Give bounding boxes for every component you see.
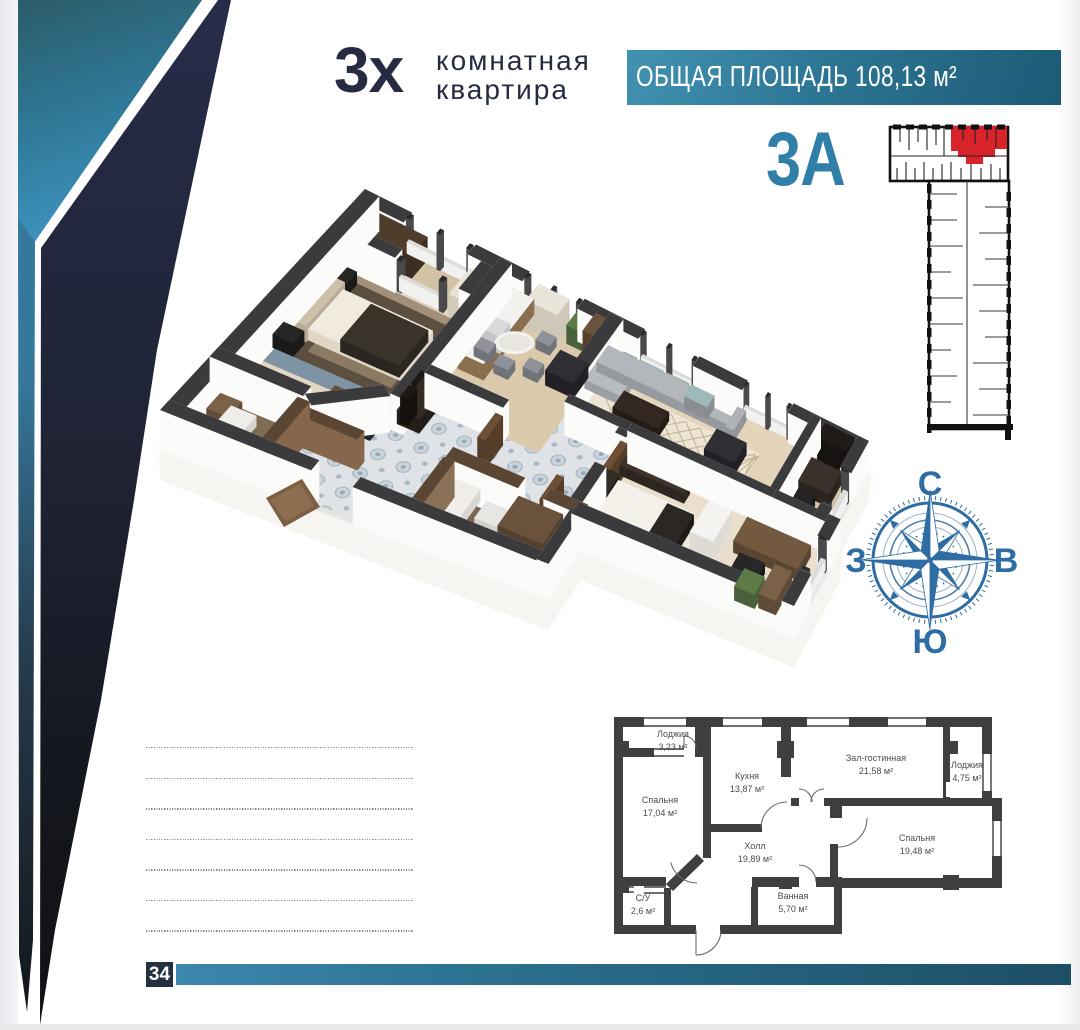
svg-text:Спальня: Спальня — [642, 795, 678, 805]
svg-text:5,70 м²: 5,70 м² — [778, 904, 807, 914]
svg-text:17,04 м²: 17,04 м² — [643, 808, 677, 818]
svg-text:Кухня: Кухня — [735, 771, 759, 781]
svg-text:19,48 м²: 19,48 м² — [900, 846, 934, 856]
svg-text:Зал-гостинная: Зал-гостинная — [846, 753, 906, 763]
svg-text:Холл: Холл — [744, 841, 765, 851]
svg-text:3,23 м²: 3,23 м² — [658, 742, 687, 752]
svg-text:Ванная: Ванная — [778, 891, 809, 901]
svg-text:19,89 м²: 19,89 м² — [738, 854, 772, 864]
svg-text:Спальня: Спальня — [899, 833, 935, 843]
svg-text:2,6 м²: 2,6 м² — [631, 906, 655, 916]
svg-text:Лоджия: Лоджия — [657, 729, 689, 739]
svg-text:13,87 м²: 13,87 м² — [730, 784, 764, 794]
svg-text:С/У: С/У — [636, 893, 651, 903]
svg-text:Лоджия: Лоджия — [951, 760, 983, 770]
svg-text:21,58 м²: 21,58 м² — [859, 766, 893, 776]
svg-text:4,75 м²: 4,75 м² — [952, 773, 981, 783]
